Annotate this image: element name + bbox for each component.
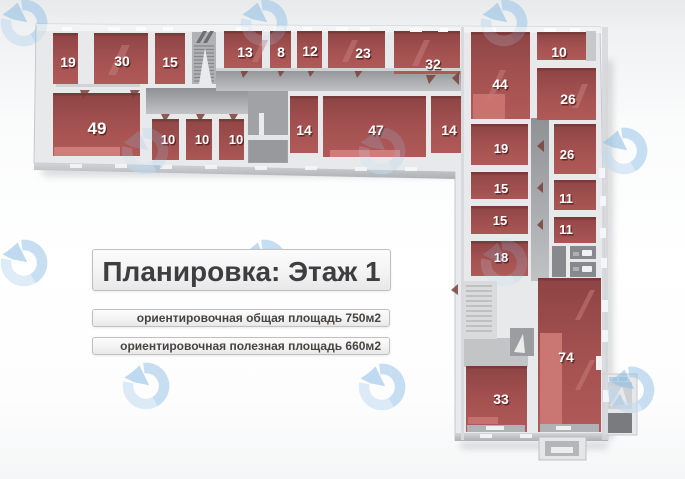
svg-text:14: 14 [296,122,312,138]
svg-text:13: 13 [237,44,253,60]
svg-text:44: 44 [492,76,508,92]
svg-text:33: 33 [493,391,509,407]
svg-text:11: 11 [559,191,573,206]
svg-text:15: 15 [162,54,178,70]
svg-text:49: 49 [88,119,107,138]
svg-text:10: 10 [195,132,209,147]
svg-text:14: 14 [441,122,457,138]
svg-text:8: 8 [277,44,285,60]
svg-text:19: 19 [494,141,508,156]
svg-text:10: 10 [551,44,567,60]
svg-text:15: 15 [493,213,507,228]
svg-text:32: 32 [425,56,441,72]
svg-text:19: 19 [60,54,76,70]
svg-text:23: 23 [355,45,371,61]
svg-text:26: 26 [560,91,576,107]
svg-text:12: 12 [302,43,318,59]
svg-text:11: 11 [559,222,573,237]
svg-text:26: 26 [560,147,574,162]
svg-text:10: 10 [229,132,243,147]
svg-text:74: 74 [558,349,574,365]
svg-text:15: 15 [494,181,508,196]
svg-text:30: 30 [114,53,130,69]
